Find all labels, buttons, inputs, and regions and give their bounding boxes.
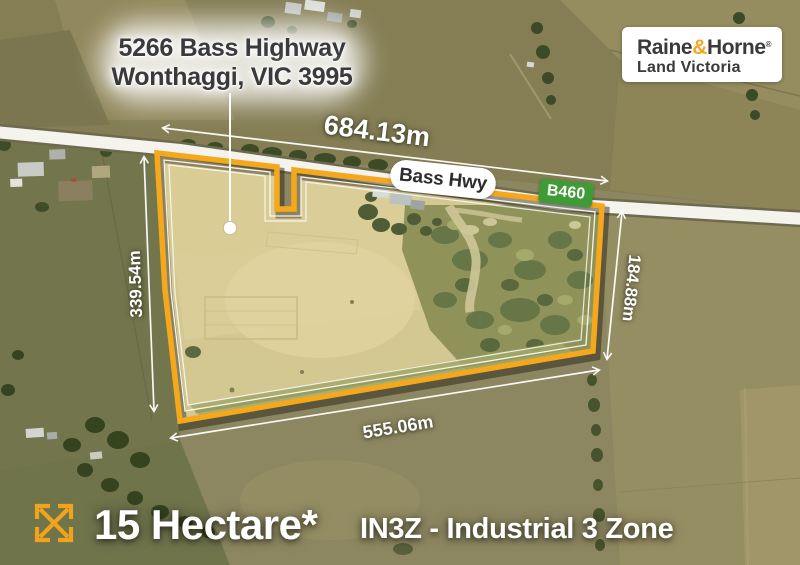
agency-logo-wordmark: Raine&Horne® — [637, 34, 782, 59]
agency-division: Land Victoria — [637, 59, 782, 77]
property-address: 5266 Bass Highway Wonthaggi, VIC 3995 — [82, 34, 382, 92]
expand-arrows-icon — [28, 497, 80, 549]
land-area-label: 15 Hectare* — [94, 501, 317, 549]
brand-raine: Raine — [637, 36, 692, 59]
zoning-label: IN3Z - Industrial 3 Zone — [360, 513, 673, 546]
agency-logo-card: Raine&Horne® Land Victoria — [622, 27, 782, 82]
trademark-symbol: ® — [766, 40, 772, 49]
address-line2: Wonthaggi, VIC 3995 — [82, 63, 382, 92]
listing-image: 5266 Bass Highway Wonthaggi, VIC 3995 Ra… — [0, 0, 800, 565]
brand-horne: Horne — [707, 36, 766, 59]
dimension-label-left: 339.54m — [124, 239, 147, 330]
address-line1: 5266 Bass Highway — [82, 34, 382, 63]
brand-ampersand: & — [692, 36, 707, 59]
